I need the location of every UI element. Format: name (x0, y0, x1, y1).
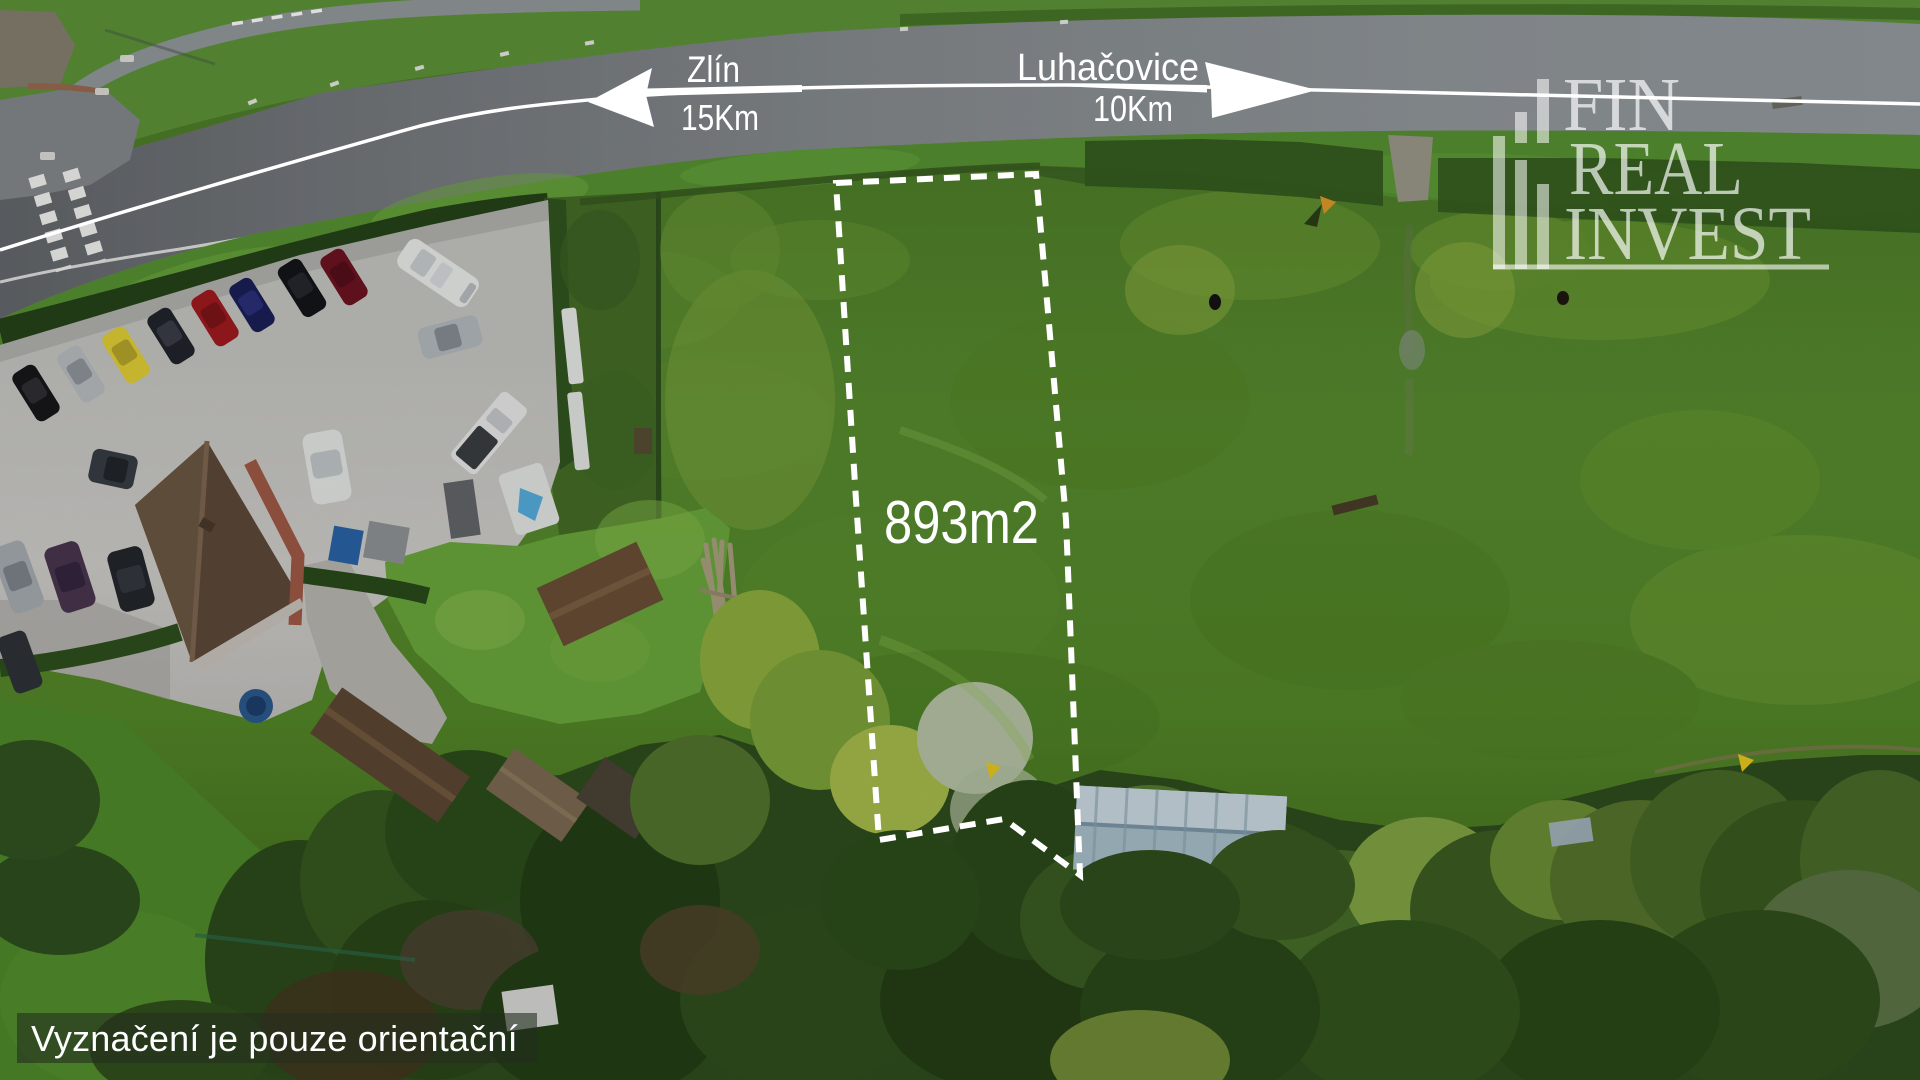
svg-text:15Km: 15Km (681, 97, 759, 138)
svg-text:INVEST: INVEST (1564, 192, 1811, 276)
svg-text:Zlín: Zlín (687, 49, 740, 90)
svg-text:10Km: 10Km (1093, 88, 1173, 129)
svg-text:893m2: 893m2 (884, 489, 1039, 556)
svg-text:Vyznačení je pouze orientační: Vyznačení je pouze orientační (31, 1018, 518, 1059)
svg-text:Luhačovice: Luhačovice (1017, 47, 1199, 89)
